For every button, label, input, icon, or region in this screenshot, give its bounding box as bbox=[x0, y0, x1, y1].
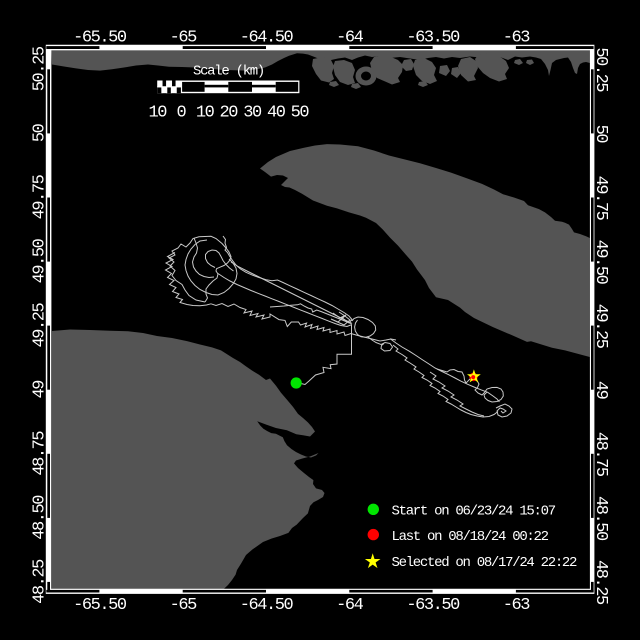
svg-text:Last on 08/18/24 00:22: Last on 08/18/24 00:22 bbox=[392, 529, 549, 545]
svg-text:10: 10 bbox=[148, 104, 167, 123]
svg-text:-64: -64 bbox=[336, 596, 364, 615]
svg-text:-64.50: -64.50 bbox=[240, 596, 294, 615]
svg-text:-63: -63 bbox=[503, 28, 531, 47]
svg-text:-65: -65 bbox=[170, 596, 198, 615]
svg-text:50: 50 bbox=[591, 125, 610, 144]
svg-text:Scale (km): Scale (km) bbox=[193, 64, 264, 80]
svg-text:49.25: 49.25 bbox=[30, 302, 49, 347]
svg-text:48.75: 48.75 bbox=[591, 432, 610, 477]
svg-text:48.50: 48.50 bbox=[591, 496, 610, 541]
svg-text:-63.50: -63.50 bbox=[406, 596, 460, 615]
svg-text:Selected on 08/17/24 22:22: Selected on 08/17/24 22:22 bbox=[392, 555, 578, 571]
svg-text:-64.50: -64.50 bbox=[240, 28, 294, 47]
svg-text:50.25: 50.25 bbox=[31, 46, 50, 91]
svg-text:49.75: 49.75 bbox=[31, 174, 50, 219]
svg-text:-65.50: -65.50 bbox=[73, 28, 127, 47]
svg-text:10: 10 bbox=[196, 104, 215, 123]
svg-text:-65: -65 bbox=[170, 28, 198, 47]
svg-text:-63: -63 bbox=[503, 596, 531, 615]
svg-text:48.25: 48.25 bbox=[30, 559, 49, 604]
svg-text:20: 20 bbox=[220, 104, 239, 123]
svg-text:-64: -64 bbox=[336, 28, 364, 47]
svg-text:50: 50 bbox=[31, 123, 50, 142]
svg-text:49.25: 49.25 bbox=[591, 304, 610, 349]
svg-text:49.75: 49.75 bbox=[591, 176, 610, 221]
svg-text:0: 0 bbox=[177, 104, 187, 123]
svg-text:40: 40 bbox=[267, 104, 286, 123]
svg-text:48.25: 48.25 bbox=[591, 560, 610, 605]
svg-text:48.50: 48.50 bbox=[31, 495, 50, 540]
svg-text:48.75: 48.75 bbox=[31, 431, 50, 476]
svg-text:49: 49 bbox=[591, 381, 610, 400]
svg-text:50: 50 bbox=[291, 104, 310, 123]
svg-text:-65.50: -65.50 bbox=[73, 596, 127, 615]
svg-text:49.50: 49.50 bbox=[591, 240, 610, 285]
svg-text:49.50: 49.50 bbox=[30, 238, 49, 283]
svg-text:Start on 06/23/24 15:07: Start on 06/23/24 15:07 bbox=[392, 504, 556, 520]
svg-text:50.25: 50.25 bbox=[591, 47, 610, 92]
svg-text:-63.50: -63.50 bbox=[406, 28, 460, 47]
svg-text:30: 30 bbox=[243, 104, 262, 123]
svg-text:49: 49 bbox=[31, 380, 50, 399]
